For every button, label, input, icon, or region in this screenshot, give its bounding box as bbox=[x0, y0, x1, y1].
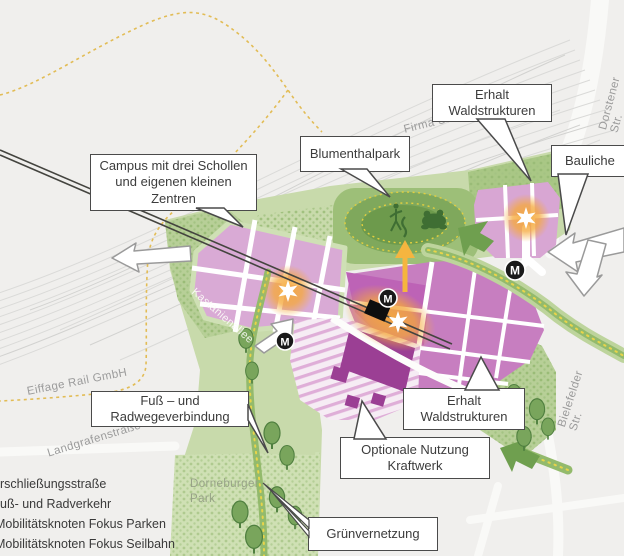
callout-campus: Campus mit drei Schollen und eigenen kle… bbox=[90, 154, 257, 211]
legend-item-erschliessungsstrasse: rschließungsstraße bbox=[0, 474, 175, 494]
svg-text:M: M bbox=[383, 294, 392, 306]
mobility-station-icon: M bbox=[276, 332, 294, 350]
mobility-station-icon: M bbox=[505, 260, 525, 280]
callout-optionale-nutzung-kraftwerk: Optionale Nutzung Kraftwerk bbox=[340, 437, 490, 479]
map-label-dorneburger-park: Dorneburger Park bbox=[190, 477, 259, 507]
planning-map: M M M Firma Stadl Dorstener Str. Bielefe… bbox=[0, 0, 624, 556]
svg-text:M: M bbox=[280, 337, 289, 349]
legend: rschließungsstraße uß- und Radverkehr Mo… bbox=[0, 474, 175, 554]
callout-gruenvernetzung: Grünvernetzung bbox=[308, 517, 438, 551]
callout-bauliche: Bauliche bbox=[551, 145, 624, 177]
svg-text:M: M bbox=[510, 264, 520, 278]
callout-erhalt-waldstrukturen-bottom: Erhalt Waldstrukturen bbox=[403, 388, 525, 430]
callout-fuss-radwegeverbindung: Fuß – und Radwegeverbindung bbox=[91, 391, 249, 427]
callout-erhalt-waldstrukturen-top: Erhalt Waldstrukturen bbox=[432, 84, 552, 122]
mobility-station-icon: M bbox=[379, 289, 397, 307]
legend-item-mobilitaetsknoten-parken: Mobilitätsknoten Fokus Parken bbox=[0, 514, 175, 534]
callout-blumenthalpark: Blumenthalpark bbox=[300, 136, 410, 172]
legend-item-fuss-radverkehr: uß- und Radverkehr bbox=[0, 494, 175, 514]
legend-item-mobilitaetsknoten-seilbahn: Mobilitätsknoten Fokus Seilbahn bbox=[0, 534, 175, 554]
